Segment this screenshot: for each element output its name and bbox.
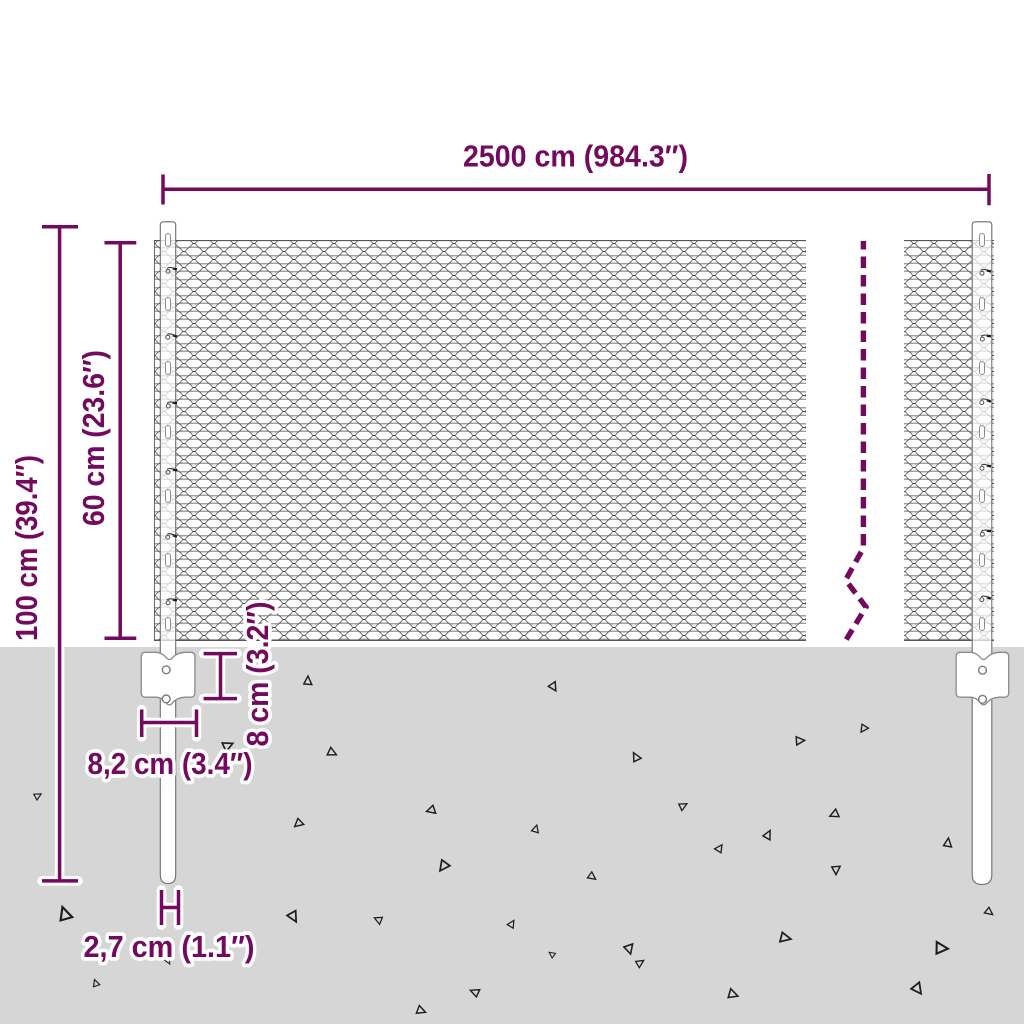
svg-text:8 cm (3.2″): 8 cm (3.2″)	[240, 602, 275, 747]
svg-text:2,7 cm (1.1″): 2,7 cm (1.1″)	[84, 929, 255, 964]
svg-text:8,2 cm (3.4″): 8,2 cm (3.4″)	[88, 746, 253, 781]
svg-text:2500 cm (984.3″): 2500 cm (984.3″)	[463, 139, 688, 174]
svg-text:60 cm (23.6″): 60 cm (23.6″)	[76, 350, 111, 526]
svg-text:100 cm (39.4″): 100 cm (39.4″)	[9, 455, 44, 641]
